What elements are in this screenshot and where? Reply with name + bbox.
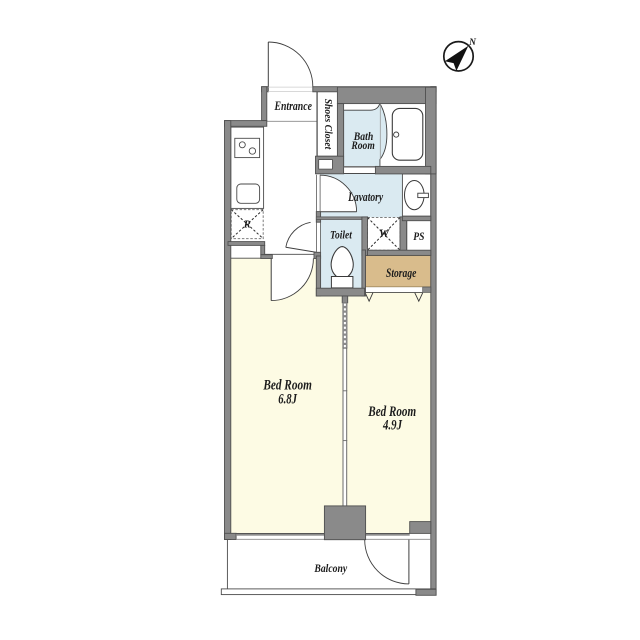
- svg-text:Toilet: Toilet: [330, 228, 352, 242]
- svg-text:N: N: [468, 38, 477, 48]
- svg-text:Storage: Storage: [386, 266, 417, 280]
- svg-text:Balcony: Balcony: [314, 561, 348, 575]
- svg-text:Entrance: Entrance: [274, 99, 313, 113]
- svg-text:PS: PS: [413, 231, 424, 243]
- svg-text:4.9J: 4.9J: [382, 417, 402, 433]
- svg-text:Lavatory: Lavatory: [347, 190, 383, 204]
- svg-text:Room: Room: [351, 138, 375, 152]
- svg-text:Shoes Closet: Shoes Closet: [322, 99, 333, 151]
- svg-text:W: W: [379, 228, 390, 240]
- svg-text:R: R: [243, 220, 251, 231]
- svg-text:6.8J: 6.8J: [278, 391, 297, 407]
